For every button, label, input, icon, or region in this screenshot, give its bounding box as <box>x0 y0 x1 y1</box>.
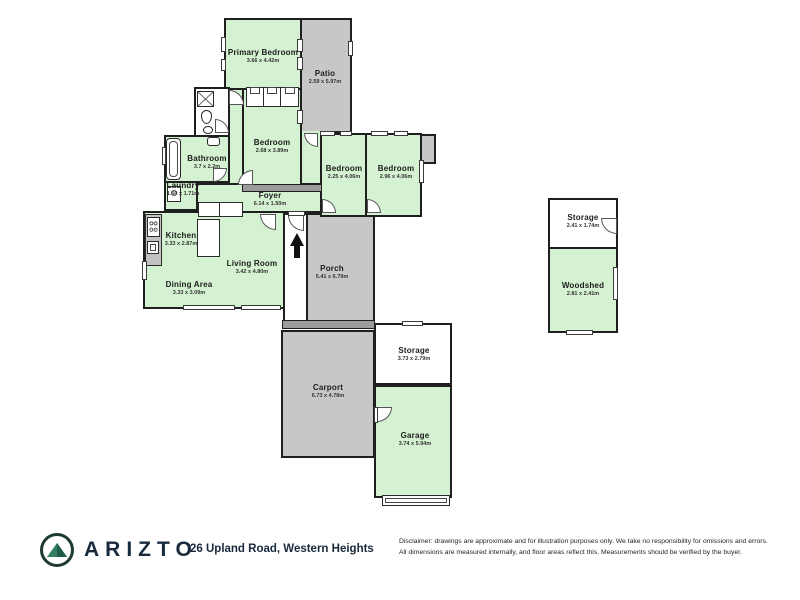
window-icon <box>162 147 166 165</box>
disclaimer-line-1: Disclaimer: drawings are approximate and… <box>399 537 769 548</box>
room-label-garage: Garage 3.74 x 5.94m <box>399 431 431 447</box>
room-label-primary-bedroom: Primary Bedroom 3.66 x 4.42m <box>228 48 298 64</box>
kitchen-sink-icon <box>147 241 159 254</box>
room-label-bedroom-2: Bedroom 2.68 x 3.89m <box>254 138 291 154</box>
disclaimer-line-2: All dimensions are measured internally, … <box>399 548 769 559</box>
bathtub-icon <box>166 138 181 180</box>
window-icon <box>221 59 226 71</box>
room-label-woodshed: Woodshed 2.81 x 2.41m <box>562 281 604 297</box>
stove-icon <box>147 217 160 237</box>
window-icon <box>371 131 388 136</box>
arizto-logo-icon <box>40 533 74 567</box>
room-label-living-room: Living Room 3.42 x 4.80m <box>227 259 278 275</box>
porch-wall-band <box>282 320 375 329</box>
window-icon <box>241 305 281 310</box>
door-opening <box>374 407 378 423</box>
property-address: 26 Upland Road, Western Heights <box>190 543 374 555</box>
entry-arrow-icon <box>294 245 300 258</box>
room-label-bathroom: Bathroom 3.7 x 2.2m <box>187 154 226 170</box>
foyer-cabinet-icon <box>219 202 243 217</box>
window-icon <box>183 305 235 310</box>
bathroom-sink-icon <box>207 137 220 146</box>
window-icon <box>348 41 353 56</box>
entry-path <box>283 213 308 329</box>
front-door-opening <box>288 211 305 216</box>
shower-icon <box>197 91 214 107</box>
window-icon <box>394 131 408 136</box>
wardrobe-icon <box>280 87 299 107</box>
window-icon <box>613 267 618 300</box>
window-icon <box>566 330 593 335</box>
room-label-porch: Porch 5.41 x 6.79m <box>316 264 348 280</box>
room-label-bedroom-4: Bedroom 2.96 x 4.06m <box>378 164 415 180</box>
pantry-icon <box>197 219 220 257</box>
window-icon <box>419 160 424 183</box>
room-label-foyer: Foyer 6.14 x 1.50m <box>254 191 286 207</box>
window-icon <box>402 321 423 326</box>
window-icon <box>340 131 352 136</box>
window-icon <box>320 131 335 136</box>
wardrobe-icon <box>246 87 264 107</box>
garage-door-icon <box>382 495 450 506</box>
room-label-storage-main: Storage 3.73 x 2.79m <box>398 346 430 362</box>
floor-plan-page: Primary Bedroom 3.66 x 4.42m Patio 2.59 … <box>0 0 800 600</box>
window-icon <box>221 37 226 52</box>
wardrobe-icon <box>263 87 281 107</box>
window-icon <box>142 261 147 280</box>
disclaimer-text: Disclaimer: drawings are approximate and… <box>399 537 769 558</box>
room-label-dining-area: Dining Area 3.33 x 3.09m <box>166 280 213 296</box>
window-icon <box>297 110 303 124</box>
room-label-bedroom-3: Bedroom 2.25 x 4.06m <box>326 164 363 180</box>
room-label-laundry: Laundry 1.50 x 1.71m <box>167 181 200 197</box>
wc-sink-icon <box>203 126 213 134</box>
room-label-patio: Patio 2.59 x 5.97m <box>309 69 341 85</box>
room-label-kitchen: Kitchen 3.33 x 2.87m <box>165 231 197 247</box>
room-label-carport: Carport 6.73 x 4.78m <box>312 383 344 399</box>
foyer-cabinet-icon <box>198 202 220 217</box>
brand-name: ARIZTO <box>84 538 198 562</box>
room-label-storage-outbuilding: Storage 2.41 x 1.74m <box>567 213 599 229</box>
